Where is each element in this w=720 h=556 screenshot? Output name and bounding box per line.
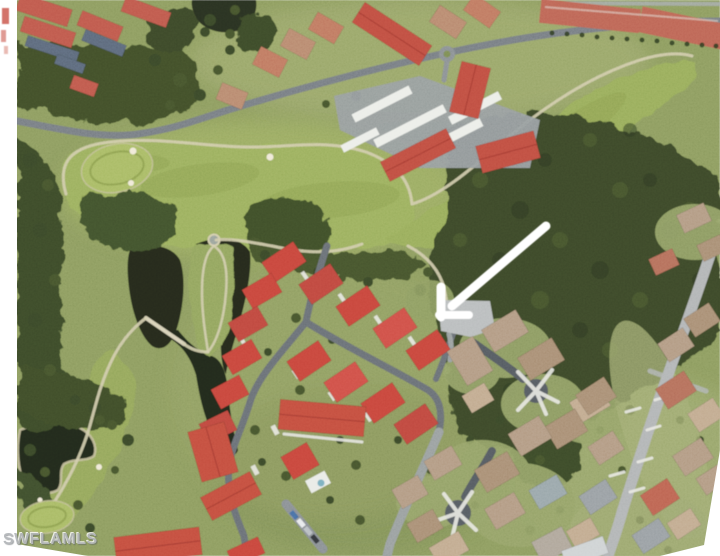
watermark-text: SWFLAMLS bbox=[3, 531, 98, 549]
photo-grain bbox=[0, 0, 720, 556]
aerial-photo: SWFLAMLS bbox=[0, 0, 720, 556]
edge-artifacts bbox=[1, 8, 9, 54]
aerial-photo-canvas bbox=[0, 0, 720, 556]
